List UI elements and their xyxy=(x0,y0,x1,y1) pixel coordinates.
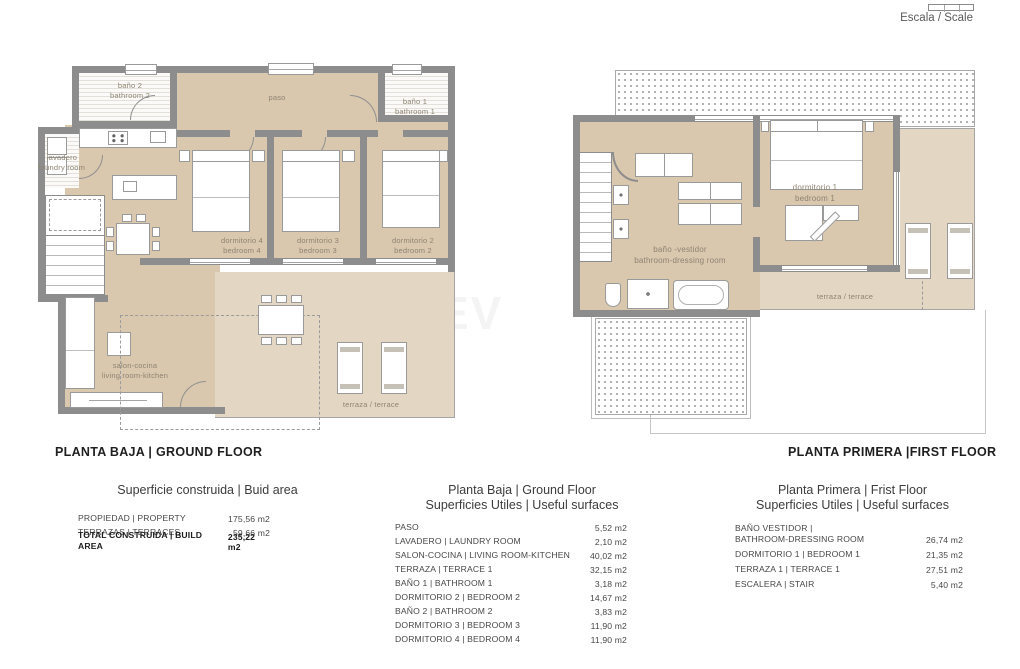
wardrobe-divider xyxy=(710,183,711,199)
row-label: DORMITORIO 4 | BEDROOM 4 xyxy=(395,634,520,645)
dining-table xyxy=(116,223,150,255)
row-value: 235,22 m2 xyxy=(228,532,270,552)
window xyxy=(376,258,436,265)
outdoor-stool xyxy=(291,337,302,345)
dining-chair xyxy=(136,214,146,222)
wall-bedrooms-bottom xyxy=(250,258,283,265)
table-row: DORMITORIO 1 | BEDROOM 1 21,35 m2 xyxy=(735,545,963,560)
room-label-living: salon-cocina living room-kitchen xyxy=(85,361,185,381)
outdoor-stool xyxy=(276,295,287,303)
window xyxy=(893,172,899,265)
pergola-bottom xyxy=(595,318,747,415)
wall-bedroom-bottom xyxy=(867,265,900,272)
pillow-divider xyxy=(817,121,818,131)
lower-floor-outline xyxy=(985,310,986,434)
outdoor-stool xyxy=(261,337,272,345)
row-label: SALON-COCINA | LIVING ROOM-KITCHEN xyxy=(395,550,570,561)
bed-blanket-line xyxy=(771,160,862,161)
outdoor-stool xyxy=(291,295,302,303)
ground-floor-title: PLANTA BAJA | GROUND FLOOR xyxy=(55,445,262,459)
toilet xyxy=(605,283,621,307)
bed xyxy=(192,150,250,232)
table-row: ESCALERA | STAIR 5,40 m2 xyxy=(735,575,963,590)
row-label: PROPIEDAD | PROPERTY xyxy=(78,513,186,524)
window xyxy=(392,64,422,75)
room-label-terrace: terraza / terrace xyxy=(795,292,895,302)
nightstand xyxy=(252,150,265,162)
table-row: DORMITORIO 4 | BEDROOM 4 11,90 m2 xyxy=(395,631,627,645)
row-label: ESCALERA | STAIR xyxy=(735,579,814,590)
room-label-bedroom3: dormitorio 3 bedroom 3 xyxy=(278,236,358,256)
window-glass-line xyxy=(126,70,156,71)
dining-chair xyxy=(122,214,132,222)
lounge-band xyxy=(340,384,360,389)
wall-bedroom-divider xyxy=(360,137,367,265)
lower-floor-outline xyxy=(650,433,985,434)
row-value: 5,52 m2 xyxy=(595,523,627,533)
bed-pillow xyxy=(771,121,862,132)
wall-bedrooms-bottom xyxy=(140,258,190,265)
wardrobe-divider xyxy=(664,154,665,176)
window-glass-line xyxy=(782,269,867,270)
dining-chair xyxy=(106,227,114,237)
row-label: TERRAZA 1 | TERRACE 1 xyxy=(735,564,840,575)
lounge-band xyxy=(950,228,970,233)
table-row: BAÑO 2 | BATHROOM 2 3,83 m2 xyxy=(395,603,627,617)
wall-divider xyxy=(753,115,760,207)
table-row: TERRAZA 1 | TERRACE 1 27,51 m2 xyxy=(735,560,963,575)
table-title-line2: Superficies Utiles | Useful surfaces xyxy=(392,498,652,513)
wardrobe xyxy=(678,203,742,225)
dining-chair xyxy=(152,227,160,237)
row-value: 5,40 m2 xyxy=(931,580,963,590)
wall-bedrooms-top xyxy=(177,130,230,137)
lounge-chair xyxy=(381,342,407,394)
ground-surfaces-table: PASO 5,52 m2 LAVADERO | LAUNDRY ROOM 2,1… xyxy=(395,519,627,645)
lounge-band xyxy=(340,347,360,352)
kitchen-island xyxy=(112,175,177,200)
scale-bar-divider xyxy=(944,5,945,12)
ground-floor-plan: baño 2 bathroom 2 lavadero laundry room … xyxy=(30,55,465,450)
row-value: 14,67 m2 xyxy=(590,593,627,603)
wall-left xyxy=(573,115,580,317)
room-label-bedroom2: dormitorio 2 bedroom 2 xyxy=(373,236,453,256)
wall-right-upper xyxy=(893,115,900,172)
table-row-total: TOTAL CONSTRUIDA | BUILD AREA 235,22 m2 xyxy=(78,538,270,552)
row-value: 11,90 m2 xyxy=(591,635,627,645)
room-label-bedroom1: dormitorio 1 bedroom 1 xyxy=(765,183,865,205)
scale-bar-icon xyxy=(928,4,974,11)
window xyxy=(268,63,314,75)
table-row: BAÑO 1 | BATHROOM 1 3,18 m2 xyxy=(395,575,627,589)
wall-bottom xyxy=(573,310,760,317)
row-label: LAVADERO | LAUNDRY ROOM xyxy=(395,536,521,547)
row-label: DORMITORIO 1 | BEDROOM 1 xyxy=(735,549,860,560)
table-row: PROPIEDAD | PROPERTY 175,56 m2 xyxy=(78,510,270,524)
staircase xyxy=(45,235,105,295)
row-label: DORMITORIO 2 | BEDROOM 2 xyxy=(395,592,520,603)
bed xyxy=(382,150,440,228)
wall-bedrooms-bottom xyxy=(436,258,448,265)
row-label: PASO xyxy=(395,522,419,533)
scale-label: Escala / Scale xyxy=(865,12,973,24)
window xyxy=(782,265,867,272)
wall-bedrooms-bottom xyxy=(343,258,376,265)
table-row: BAÑO VESTIDOR | BATHROOM-DRESSING ROOM 2… xyxy=(735,519,963,545)
row-label: BAÑO VESTIDOR | BATHROOM-DRESSING ROOM xyxy=(735,523,864,545)
storage-shelves xyxy=(49,199,101,231)
row-value: 3,83 m2 xyxy=(595,607,627,617)
window xyxy=(125,64,157,75)
window xyxy=(190,258,250,265)
row-value: 11,90 m2 xyxy=(591,621,627,631)
wall-bedrooms-top xyxy=(327,130,378,137)
window-glass-line xyxy=(269,69,313,70)
lounge-chair xyxy=(337,342,363,394)
bathtub-inner xyxy=(678,285,724,305)
dining-chair xyxy=(106,241,114,251)
room-label-bath-dressing: baño -vestidor bathroom-dressing room xyxy=(610,245,750,267)
row-label: BAÑO 2 | BATHROOM 2 xyxy=(395,606,493,617)
wall-bath2-bottom xyxy=(72,121,177,128)
staircase xyxy=(578,152,612,262)
wall-bath2-right xyxy=(170,73,177,121)
table-row: LAVADERO | LAUNDRY ROOM 2,10 m2 xyxy=(395,533,627,547)
island-sink xyxy=(123,181,137,192)
lounge-band xyxy=(384,384,404,389)
wall-bedroom-bottom xyxy=(760,265,782,272)
window xyxy=(283,258,343,265)
first-floor-title: PLANTA PRIMERA |FIRST FLOOR xyxy=(788,445,996,459)
window-glass-line xyxy=(896,172,897,265)
nightstand xyxy=(865,121,874,132)
floorplan-document: { "header": { "scale_label": "Escala / S… xyxy=(0,0,1020,669)
lounge-band xyxy=(908,228,928,233)
room-label-paso: paso xyxy=(247,93,307,103)
row-value: 2,10 m2 xyxy=(595,537,627,547)
lounge-band xyxy=(384,347,404,352)
first-surfaces-table-title: Planta Primera | Frist Floor Superficies… xyxy=(725,483,980,513)
bed-blanket-line xyxy=(283,197,339,198)
outdoor-table xyxy=(258,305,304,335)
outdoor-stool xyxy=(261,295,272,303)
nightstand xyxy=(342,150,355,162)
wardrobe xyxy=(678,182,742,200)
row-value: 32,15 m2 xyxy=(590,565,627,575)
table-title-line2: Superficies Utiles | Useful surfaces xyxy=(725,498,980,513)
table-row: SALON-COCINA | LIVING ROOM-KITCHEN 40,02… xyxy=(395,547,627,561)
bed-blanket-line xyxy=(193,197,249,198)
table-row: TERRAZA | TERRACE 1 32,15 m2 xyxy=(395,561,627,575)
room-label-terrace: terraza / terrace xyxy=(321,400,421,410)
build-area-table-title: Superficie construida | Buid area xyxy=(95,483,320,498)
row-value: 40,02 m2 xyxy=(590,551,627,561)
wall-bedrooms-top xyxy=(403,130,448,137)
window-glass-line xyxy=(190,262,250,263)
bed xyxy=(770,120,863,190)
wall-divider xyxy=(753,237,760,272)
row-value: 27,51 m2 xyxy=(926,565,963,575)
bed-blanket-line xyxy=(383,195,439,196)
nightstand xyxy=(179,150,190,162)
dining-chair xyxy=(152,241,160,251)
scale-bar-divider xyxy=(959,5,960,12)
row-label: DORMITORIO 3 | BEDROOM 3 xyxy=(395,620,520,631)
row-label: TOTAL CONSTRUIDA | BUILD AREA xyxy=(78,530,228,552)
sink xyxy=(613,219,629,239)
table-row: DORMITORIO 3 | BEDROOM 3 11,90 m2 xyxy=(395,617,627,631)
wall-top xyxy=(573,115,695,122)
kitchen-sink xyxy=(150,131,166,143)
wall-bedrooms-top xyxy=(255,130,302,137)
row-value: 21,35 m2 xyxy=(926,550,963,560)
bed-pillow xyxy=(383,151,439,162)
terrace-floor xyxy=(760,272,975,310)
outdoor-stool xyxy=(276,337,287,345)
sofa-cushion-line xyxy=(66,350,94,351)
wardrobe xyxy=(635,153,693,177)
build-area-table: PROPIEDAD | PROPERTY 175,56 m2 TERRAZAS … xyxy=(78,510,270,552)
first-floor-plan: baño -vestidor bathroom-dressing room do… xyxy=(565,55,995,470)
lounge-band xyxy=(908,269,928,274)
room-label-bath2: baño 2 bathroom 2 xyxy=(90,81,170,101)
sink xyxy=(613,185,629,205)
window-glass-line xyxy=(376,262,436,263)
room-label-bath1: baño 1 bathroom 1 xyxy=(382,97,448,117)
first-surfaces-table: BAÑO VESTIDOR | BATHROOM-DRESSING ROOM 2… xyxy=(735,519,963,590)
nightstand xyxy=(761,121,769,132)
table-title-line1: Planta Primera | Frist Floor xyxy=(725,483,980,498)
room-label-bedroom4: dormitorio 4 bedroom 4 xyxy=(202,236,282,256)
row-value: 26,74 m2 xyxy=(926,535,963,545)
table-title-line1: Planta Baja | Ground Floor xyxy=(392,483,652,498)
table-row: PASO 5,52 m2 xyxy=(395,519,627,533)
row-value: 175,56 m2 xyxy=(228,514,270,524)
ground-surfaces-table-title: Planta Baja | Ground Floor Superficies U… xyxy=(392,483,652,513)
stove xyxy=(108,131,128,145)
lounge-band xyxy=(950,269,970,274)
bed-pillow xyxy=(193,151,249,162)
room-label-laundry: lavadero laundry room xyxy=(30,153,94,173)
lounge-chair xyxy=(905,223,931,279)
bed-pillow xyxy=(283,151,339,162)
row-value: 3,18 m2 xyxy=(595,579,627,589)
table-row: DORMITORIO 2 | BEDROOM 2 14,67 m2 xyxy=(395,589,627,603)
window-glass-line xyxy=(283,262,343,263)
row-label: BAÑO 1 | BATHROOM 1 xyxy=(395,578,493,589)
row-label: TERRAZA | TERRACE 1 xyxy=(395,564,493,575)
wall-left-lower xyxy=(58,302,65,407)
nightstand xyxy=(439,150,448,162)
bed xyxy=(282,150,340,232)
lounge-chair xyxy=(947,223,973,279)
window-glass-line xyxy=(393,70,421,71)
shower xyxy=(627,279,669,309)
wardrobe-divider xyxy=(710,204,711,224)
bathtub xyxy=(673,280,729,310)
